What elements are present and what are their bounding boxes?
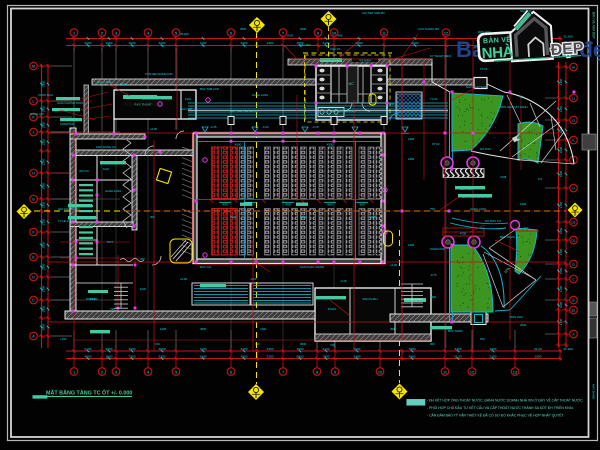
svg-text:P.NGHI: P.NGHI [86, 297, 95, 301]
svg-text:3300: 3300 [354, 354, 361, 358]
svg-text:HANH LANG: HANH LANG [470, 207, 486, 211]
svg-text:4500: 4500 [241, 354, 248, 358]
svg-text:4728: 4728 [460, 232, 467, 236]
svg-text:BAC TAM CAP: BAC TAM CAP [200, 87, 219, 91]
svg-text:3: 3 [115, 31, 117, 35]
svg-text:7200: 7200 [200, 41, 207, 45]
svg-text:3600: 3600 [159, 41, 166, 45]
svg-text:7200: 7200 [129, 354, 136, 358]
svg-text:SANH DON: SANH DON [430, 247, 445, 251]
svg-text:-0.15: -0.15 [312, 125, 319, 129]
svg-text:12: 12 [444, 31, 448, 35]
svg-text:BAC THEM: BAC THEM [448, 329, 463, 333]
svg-text:1500: 1500 [535, 354, 542, 358]
svg-text:1500: 1500 [106, 347, 113, 351]
svg-text:BAC TAM CAP H=150: BAC TAM CAP H=150 [230, 109, 258, 113]
svg-text:150: 150 [390, 102, 395, 106]
svg-text:2100: 2100 [42, 218, 46, 225]
svg-text:2250: 2250 [559, 105, 563, 112]
svg-text:3300: 3300 [241, 347, 248, 351]
svg-text:+150: +150 [60, 337, 67, 341]
svg-text:L2: L2 [572, 119, 576, 123]
svg-text:CAU THANG BO: CAU THANG BO [418, 27, 440, 31]
svg-text:2100: 2100 [267, 354, 274, 358]
svg-text:2800: 2800 [559, 170, 563, 177]
svg-text:3600: 3600 [42, 323, 46, 330]
svg-text:10: 10 [378, 370, 382, 374]
svg-text:460: 460 [430, 342, 435, 346]
svg-text:1500: 1500 [106, 41, 113, 45]
svg-text:G: G [32, 198, 35, 202]
svg-text:-0.75: -0.75 [430, 273, 437, 277]
svg-text:1%: 1% [538, 177, 543, 181]
svg-text:4500: 4500 [235, 143, 242, 147]
svg-text:P.CHO: P.CHO [328, 307, 337, 311]
svg-text:GHE NGOI 500x500: GHE NGOI 500x500 [330, 109, 356, 113]
svg-text:6: 6 [230, 31, 232, 35]
svg-text:HANH LANG: HANH LANG [252, 93, 268, 97]
svg-text:3300: 3300 [200, 354, 207, 358]
svg-text:-0.30: -0.30 [262, 125, 269, 129]
svg-text:10: 10 [332, 31, 336, 35]
svg-text:1200: 1200 [42, 201, 46, 208]
svg-text:1000: 1000 [559, 301, 563, 308]
svg-text:GHI CHU SO DO: GHI CHU SO DO [58, 207, 80, 211]
svg-text:HANH LANG: HANH LANG [105, 189, 121, 193]
svg-text:GACH CHONG TRON: GACH CHONG TRON [57, 101, 83, 105]
svg-text:4500: 4500 [240, 27, 247, 31]
svg-text:KHU VS: KHU VS [330, 47, 341, 51]
svg-text:900: 900 [285, 203, 290, 207]
svg-text:GHI: GHI [120, 317, 125, 321]
svg-text:3300: 3300 [159, 354, 166, 358]
svg-text:2100: 2100 [323, 347, 330, 351]
svg-text:CHI TIET XEM BV: CHI TIET XEM BV [362, 11, 385, 15]
svg-text:VUON HOA: VUON HOA [38, 93, 53, 97]
svg-text:4000: 4000 [85, 354, 92, 358]
svg-text:2000: 2000 [559, 146, 563, 153]
svg-text:SAN KHAU CHINH: SAN KHAU CHINH [300, 265, 324, 269]
svg-text:7: 7 [282, 370, 284, 374]
svg-text:BAC CAP: BAC CAP [180, 107, 192, 111]
svg-text:3600: 3600 [159, 347, 166, 351]
svg-text:4728: 4728 [500, 175, 507, 179]
svg-text:MAT BANG: MAT BANG [592, 384, 596, 400]
svg-text:450: 450 [140, 257, 145, 261]
svg-text:1500: 1500 [42, 121, 46, 128]
svg-text:2300: 2300 [42, 263, 46, 270]
svg-text:WC: WC [348, 82, 354, 86]
svg-text:7800: 7800 [323, 354, 330, 358]
svg-text:7200: 7200 [230, 215, 237, 219]
svg-text:B: B [572, 299, 574, 303]
svg-text:6600: 6600 [297, 354, 304, 358]
svg-text:5: 5 [175, 370, 177, 374]
svg-text:3: 3 [115, 370, 117, 374]
svg-text:1800: 1800 [42, 305, 46, 312]
svg-text:6600: 6600 [354, 347, 361, 351]
svg-text:1: 1 [73, 31, 75, 35]
svg-text:- PHỐI HỢP CHỦ ĐẦU TƯ KẾT CẤU: - PHỐI HỢP CHỦ ĐẦU TƯ KẾT CẤU VÀ CẤP THO… [427, 405, 574, 410]
svg-text:DO DOC 1%: DO DOC 1% [485, 219, 502, 223]
svg-text:1800: 1800 [559, 227, 563, 234]
svg-text:BON HOA CAY XANH: BON HOA CAY XANH [500, 105, 528, 109]
svg-text:MẶT BẰNG TẦNG TC ỐT +/- 0.000: MẶT BẰNG TẦNG TC ỐT +/- 0.000 [46, 389, 132, 397]
svg-text:9: 9 [334, 370, 336, 374]
svg-text:2: 2 [101, 370, 103, 374]
svg-text:BUC GO: BUC GO [200, 265, 212, 269]
svg-text:11: 11 [382, 31, 386, 35]
svg-text:750: 750 [430, 207, 435, 211]
svg-text:300: 300 [150, 215, 155, 219]
svg-text:450: 450 [390, 327, 395, 331]
svg-text:F: F [32, 231, 34, 235]
svg-text:3300: 3300 [267, 347, 274, 351]
svg-text:HL 01: HL 01 [120, 82, 128, 86]
svg-text:900: 900 [327, 203, 332, 207]
svg-text:-0.60: -0.60 [250, 277, 257, 281]
svg-text:3300: 3300 [267, 41, 274, 45]
svg-text:4: 4 [147, 370, 149, 374]
svg-text:D1: D1 [572, 239, 576, 243]
svg-text:400: 400 [337, 34, 342, 38]
svg-text:720: 720 [330, 343, 335, 347]
svg-text:-0.45: -0.45 [210, 125, 217, 129]
svg-text:BAN VE NHA DEP: BAN VE NHA DEP [592, 12, 596, 39]
svg-text:+0.00: +0.00 [180, 277, 188, 281]
svg-text:P.KT: P.KT [107, 240, 113, 244]
svg-text:H: H [572, 187, 574, 191]
svg-text:900: 900 [359, 203, 364, 207]
svg-text:SAN KHAU: SAN KHAU [362, 297, 377, 301]
svg-text:GACH LAT: GACH LAT [30, 112, 44, 116]
svg-text:3200: 3200 [85, 41, 92, 45]
svg-text:150: 150 [155, 342, 160, 346]
svg-text:GACH LAT SAN: GACH LAT SAN [466, 85, 486, 89]
svg-text:4900: 4900 [409, 354, 416, 358]
svg-text:D2: D2 [572, 221, 576, 225]
svg-text:KHO DUNG CU: KHO DUNG CU [96, 145, 116, 149]
svg-text:7: 7 [282, 31, 284, 35]
svg-text:KY THUAT DIEN: KY THUAT DIEN [430, 54, 451, 58]
svg-text:1500: 1500 [559, 267, 563, 274]
svg-text:31.20: 31.20 [534, 347, 542, 351]
svg-text:KHO: KHO [140, 287, 147, 291]
svg-text:- ĐH KẾT HỢP ỐNG THOÁT NƯỚC, Đ: - ĐH KẾT HỢP ỐNG THOÁT NƯỚC, ĐÁNH NƯỚC D… [427, 398, 584, 403]
svg-text:2000: 2000 [300, 27, 307, 31]
svg-text:- CẦN ĐẢM BẢO TỶ VẬN THIẾT KẾ: - CẦN ĐẢM BẢO TỶ VẬN THIẾT KẾ ĐÃ CÓ SƠ Đ… [427, 413, 564, 418]
svg-text:1950: 1950 [42, 138, 46, 145]
svg-text:M: M [32, 65, 35, 69]
svg-text:8: 8 [316, 370, 318, 374]
svg-text:3300: 3300 [241, 41, 248, 45]
svg-text:TX 04: TX 04 [480, 67, 488, 71]
svg-text:2100: 2100 [85, 347, 92, 351]
svg-text:1: 1 [73, 370, 75, 374]
svg-text:2300: 2300 [42, 285, 46, 292]
svg-text:2600: 2600 [42, 182, 46, 189]
svg-text:SANH PHU: SANH PHU [60, 122, 74, 126]
svg-text:150: 150 [480, 337, 485, 341]
svg-text:4500: 4500 [297, 347, 304, 351]
svg-text:3300: 3300 [370, 215, 377, 219]
svg-text:730: 730 [255, 342, 260, 346]
svg-text:9: 9 [317, 31, 319, 35]
svg-text:3400: 3400 [559, 201, 563, 208]
svg-text:1200: 1200 [408, 243, 415, 247]
svg-text:4: 4 [147, 31, 149, 35]
svg-text:5: 5 [175, 31, 177, 35]
svg-text:L1: L1 [572, 97, 576, 101]
svg-text:4000: 4000 [129, 41, 136, 45]
svg-text:2100: 2100 [490, 354, 497, 358]
svg-text:4500: 4500 [200, 327, 207, 331]
svg-text:2: 2 [101, 31, 103, 35]
svg-text:6: 6 [230, 370, 232, 374]
svg-text:7200: 7200 [200, 347, 207, 351]
svg-text:1200: 1200 [160, 327, 167, 331]
svg-text:J: J [33, 131, 35, 135]
svg-text:-0.45: -0.45 [340, 279, 347, 283]
svg-text:BON HOA: BON HOA [510, 315, 523, 319]
svg-text:KHO: KHO [185, 97, 192, 101]
svg-text:400: 400 [524, 226, 529, 230]
svg-text:2540: 2540 [520, 323, 527, 327]
svg-text:TC 01: TC 01 [430, 97, 438, 101]
svg-text:WC NU: WC NU [79, 169, 88, 173]
svg-text:2500: 2500 [42, 241, 46, 248]
svg-text:35.100: 35.100 [180, 32, 189, 36]
svg-text:3300: 3300 [455, 347, 462, 351]
svg-text:VS NAM: VS NAM [300, 43, 311, 47]
svg-text:31.200: 31.200 [563, 347, 573, 351]
svg-text:1200: 1200 [408, 137, 415, 141]
svg-text:DO DOC: DO DOC [480, 147, 491, 151]
svg-text:8.00: 8.00 [287, 34, 293, 38]
svg-text:4500: 4500 [327, 143, 334, 147]
svg-text:7800: 7800 [409, 347, 416, 351]
svg-text:4000: 4000 [129, 347, 136, 351]
svg-text:4900: 4900 [490, 347, 497, 351]
svg-text:P.KY THUAT: P.KY THUAT [135, 102, 152, 106]
svg-text:7400: 7400 [260, 327, 267, 331]
svg-text:+0.00: +0.00 [390, 263, 398, 267]
svg-text:2400: 2400 [559, 248, 563, 255]
svg-text:+0.00: +0.00 [150, 127, 158, 131]
svg-text:900: 900 [222, 203, 227, 207]
svg-text:KT 02: KT 02 [432, 142, 440, 146]
svg-text:3600: 3600 [106, 354, 113, 358]
svg-text:7200: 7200 [300, 215, 307, 219]
svg-text:BAC THEM: BAC THEM [500, 235, 515, 239]
svg-text:1200: 1200 [520, 202, 527, 206]
svg-text:TY LE 1/100: TY LE 1/100 [58, 219, 74, 223]
svg-text:KHO: KHO [103, 167, 110, 171]
svg-text:B1: B1 [572, 309, 576, 313]
svg-text:2400: 2400 [408, 157, 415, 161]
svg-text:3300: 3300 [559, 78, 563, 85]
svg-text:L: L [33, 100, 35, 104]
svg-text:730: 730 [110, 307, 115, 311]
svg-text:3300: 3300 [42, 80, 46, 87]
svg-text:12: 12 [470, 370, 474, 374]
svg-text:11: 11 [443, 370, 447, 374]
svg-text:4500: 4500 [300, 342, 307, 346]
svg-text:13: 13 [513, 370, 517, 374]
svg-text:3300: 3300 [430, 295, 437, 299]
svg-text:M: M [572, 66, 575, 70]
svg-text:2100: 2100 [559, 285, 563, 292]
svg-text:31.20: 31.20 [454, 354, 462, 358]
svg-text:2250: 2250 [42, 158, 46, 165]
svg-text:TON NEN DONG DAT: TON NEN DONG DAT [145, 72, 173, 76]
svg-text:CX: CX [520, 95, 524, 99]
